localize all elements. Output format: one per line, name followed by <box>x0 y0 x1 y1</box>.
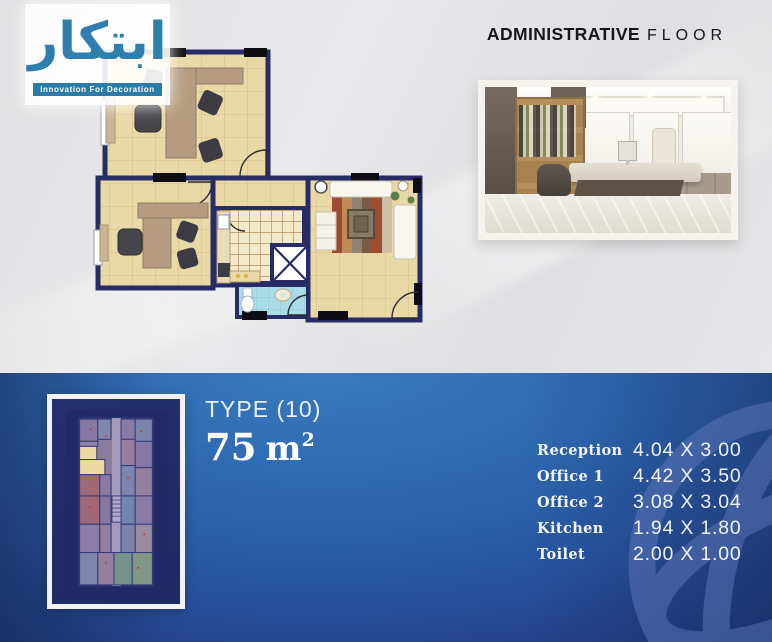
page-title: ADMINISTRATIVEFLOOR <box>468 24 746 45</box>
table-row: Reception 4.04 X 3.00 <box>537 437 742 463</box>
table-row: Kitchen 1.94 X 1.80 <box>537 515 742 541</box>
top-section: ابتكار Innovation For Decoration ADMINIS… <box>0 0 772 373</box>
table-row: Toilet 2.00 X 1.00 <box>537 541 742 567</box>
unit-area-exponent: 2 <box>301 429 314 451</box>
building-floor-map-plan <box>65 411 167 593</box>
office-interior-photo <box>478 80 738 240</box>
unit-area-value: 75 <box>205 425 257 469</box>
unit-area: 75m2 <box>205 425 321 469</box>
room-size: 1.94 X 1.80 <box>633 517 742 540</box>
info-band: TYPE (10) 75m2 Reception 4.04 X 3.00 Off… <box>0 373 772 642</box>
photo-books <box>519 105 576 158</box>
brand-tagline: Innovation For Decoration <box>33 83 162 96</box>
brochure-page: ابتكار Innovation For Decoration ADMINIS… <box>0 0 772 642</box>
room-size: 4.42 X 3.50 <box>633 465 742 488</box>
photo-floor <box>485 194 731 233</box>
photo-computer <box>618 141 637 161</box>
unit-area-unit: m <box>266 429 302 469</box>
room-name: Kitchen <box>537 520 633 537</box>
photo-ceiling-light <box>593 96 598 101</box>
room-size: 3.08 X 3.04 <box>633 491 742 514</box>
room-size: 4.04 X 3.00 <box>633 439 742 462</box>
photo-white-chair <box>652 128 676 168</box>
room-name: Toilet <box>537 546 633 563</box>
highlighted-unit <box>80 446 97 459</box>
brand-logo-arabic: ابتكار <box>28 4 166 80</box>
brand-logo: ابتكار Innovation For Decoration <box>25 4 170 105</box>
page-title-bold: ADMINISTRATIVE <box>487 24 640 44</box>
table-row: Office 2 3.08 X 3.04 <box>537 489 742 515</box>
room-size: 2.00 X 1.00 <box>633 543 742 566</box>
building-floor-map <box>47 394 185 609</box>
elevator-shaft <box>272 245 308 282</box>
dimensions-table: Reception 4.04 X 3.00 Office 1 4.42 X 3.… <box>537 437 742 567</box>
stairs <box>112 495 121 521</box>
highlighted-unit <box>80 459 105 474</box>
room-name: Reception <box>537 442 633 459</box>
table-row: Office 1 4.42 X 3.50 <box>537 463 742 489</box>
unit-type-label: TYPE (10) <box>205 396 321 423</box>
page-title-light: FLOOR <box>647 27 727 44</box>
room-name: Office 1 <box>537 468 633 485</box>
photo-dark-chair <box>537 164 571 196</box>
room-name: Office 2 <box>537 494 633 511</box>
unit-type-block: TYPE (10) 75m2 <box>205 396 321 469</box>
photo-desk-panel <box>574 180 684 196</box>
